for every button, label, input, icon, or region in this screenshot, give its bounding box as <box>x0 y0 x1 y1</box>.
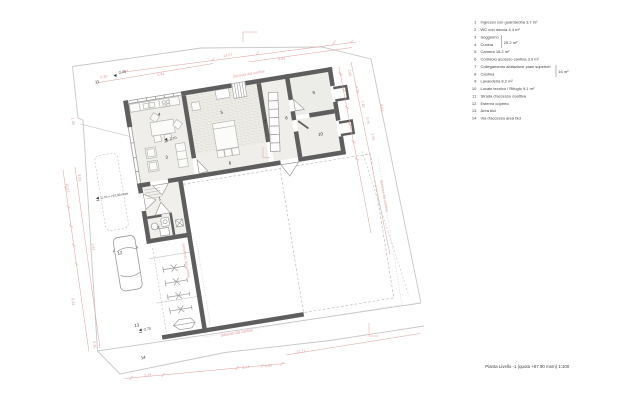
svg-text:Camera 18.2 m²: Camera 18.2 m² <box>481 49 511 54</box>
svg-text:Ingresso con guardaroba 3.7 m²: Ingresso con guardaroba 3.7 m² <box>481 20 539 25</box>
svg-text:16 m²: 16 m² <box>558 69 569 74</box>
svg-text:12: 12 <box>472 101 477 106</box>
svg-text:Locale tecnico / Rifugio 9.1 m: Locale tecnico / Rifugio 9.1 m² <box>481 86 535 91</box>
svg-text:25.2 m²: 25.2 m² <box>504 40 518 45</box>
svg-text:Area bici: Area bici <box>481 108 497 113</box>
svg-text:Cantina: Cantina <box>481 71 496 76</box>
svg-text:WC con doccia 4.4 m²: WC con doccia 4.4 m² <box>481 27 521 32</box>
svg-text:Via d'accesso area bici: Via d'accesso area bici <box>481 116 522 121</box>
svg-text:13: 13 <box>472 108 477 113</box>
svg-text:Lavanderia 8.2 m²: Lavanderia 8.2 m² <box>481 79 514 84</box>
svg-text:Strada d'accesso coattiva: Strada d'accesso coattiva <box>481 93 527 98</box>
svg-text:Soggiorno: Soggiorno <box>481 34 500 39</box>
svg-text:Corridoio accesso cantina 3.9: Corridoio accesso cantina 3.9 m² <box>481 57 540 62</box>
svg-text:Collegamento abitazione piani: Collegamento abitazione piani superiori <box>481 64 551 69</box>
svg-text:10: 10 <box>472 86 477 91</box>
svg-text:Pianta Livello -1 (quota +87.: Pianta Livello -1 (quota +87.90 msm) 1:1… <box>485 364 570 369</box>
svg-text:14: 14 <box>472 116 477 121</box>
svg-text:Esterno coperto: Esterno coperto <box>481 101 510 106</box>
svg-text:Cucina: Cucina <box>481 42 494 47</box>
